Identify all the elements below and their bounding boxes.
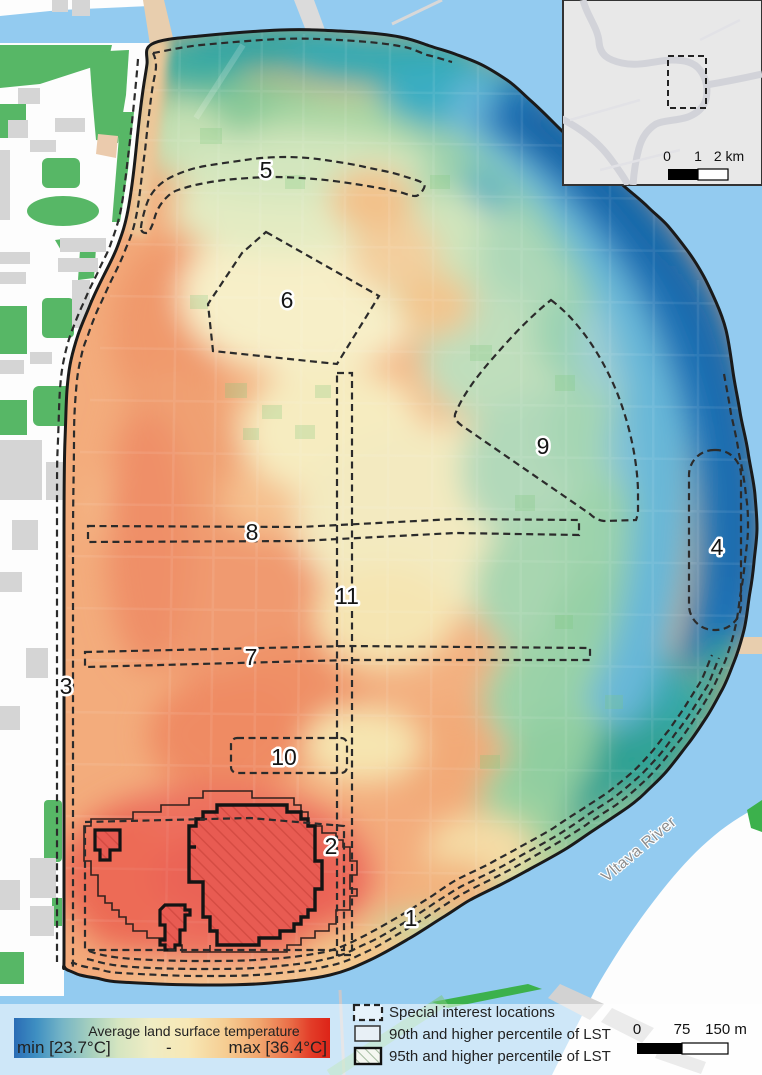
svg-text:8: 8 [246,519,259,545]
svg-text:1: 1 [694,148,702,164]
svg-text:7: 7 [245,644,258,670]
svg-text:1: 1 [405,905,418,931]
svg-text:min [23.7°C]: min [23.7°C] [17,1038,111,1057]
svg-text:3: 3 [60,673,73,699]
svg-text:6: 6 [281,287,294,313]
svg-text:150 m: 150 m [705,1021,747,1038]
svg-text:0: 0 [633,1021,641,1038]
svg-text:Average land surface temperatu: Average land surface temperature [88,1023,300,1039]
svg-text:11: 11 [335,583,359,609]
svg-text:10: 10 [271,744,297,770]
svg-text:2 km: 2 km [714,148,744,164]
svg-text:5: 5 [260,157,273,183]
svg-text:Special interest locations: Special interest locations [389,1004,555,1021]
svg-text:max [36.4°C]: max [36.4°C] [229,1038,327,1057]
svg-text:2: 2 [325,833,338,859]
svg-text:-: - [166,1038,172,1057]
svg-text:95th and higher percentile of: 95th and higher percentile of LST [389,1048,611,1065]
svg-text:75: 75 [674,1021,691,1038]
svg-text:90th and higher percentile of: 90th and higher percentile of LST [389,1026,611,1043]
svg-text:9: 9 [537,433,550,459]
svg-text:0: 0 [663,148,671,164]
svg-text:4: 4 [711,534,724,560]
